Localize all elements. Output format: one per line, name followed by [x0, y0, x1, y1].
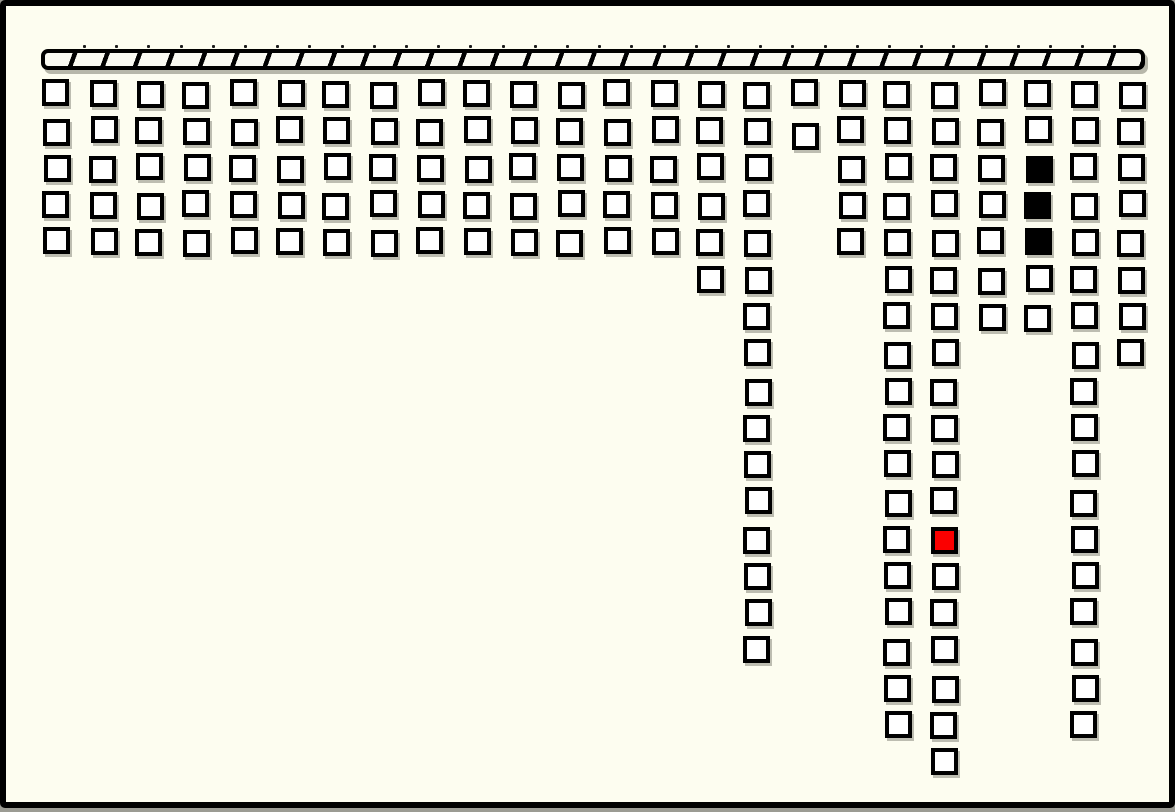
block-cell[interactable]	[696, 117, 723, 144]
block-cell[interactable]	[931, 748, 958, 775]
tick-dot	[212, 45, 215, 48]
block-cell[interactable]	[603, 191, 630, 218]
tick-dot	[373, 45, 376, 48]
block-cell[interactable]	[183, 230, 210, 257]
block-cell[interactable]	[416, 119, 443, 146]
tick-dot	[180, 45, 183, 48]
block-cell[interactable]	[930, 267, 957, 294]
block-cell[interactable]	[1117, 230, 1144, 257]
block-cell[interactable]	[885, 266, 912, 293]
block-cell[interactable]	[885, 598, 912, 625]
block-cell[interactable]	[1118, 267, 1145, 294]
block-cell[interactable]	[791, 79, 818, 106]
block-cell[interactable]	[322, 193, 349, 220]
tick-dot	[598, 45, 601, 48]
block-cell[interactable]	[744, 451, 771, 478]
block-cell[interactable]	[885, 490, 912, 517]
tick-dot	[534, 45, 537, 48]
block-cell[interactable]	[745, 267, 772, 294]
tick-dot	[920, 45, 923, 48]
block-cell[interactable]	[977, 227, 1004, 254]
block-cell[interactable]	[932, 563, 959, 590]
block-cell[interactable]	[137, 193, 164, 220]
block-cell[interactable]	[1070, 711, 1097, 738]
tick-dot	[791, 45, 794, 48]
block-cell[interactable]	[510, 193, 537, 220]
tick-dot	[759, 45, 762, 48]
block-cell[interactable]	[44, 155, 71, 182]
block-cell[interactable]	[1118, 154, 1145, 181]
block-cell[interactable]	[979, 304, 1006, 331]
tick-dot	[308, 45, 311, 48]
block-cell[interactable]	[89, 156, 116, 183]
block-cell[interactable]	[696, 229, 723, 256]
block-cell[interactable]	[1070, 490, 1097, 517]
tick-dot	[469, 45, 472, 48]
block-cell[interactable]	[698, 81, 725, 108]
block-cell[interactable]	[371, 230, 398, 257]
block-cell[interactable]	[91, 228, 118, 255]
block-cell[interactable]	[697, 153, 724, 180]
block-cell[interactable]	[651, 192, 678, 219]
block-cell[interactable]	[745, 154, 772, 181]
block-cell[interactable]	[1072, 229, 1099, 256]
block-cell[interactable]	[930, 154, 957, 181]
block-cell[interactable]	[231, 227, 258, 254]
block-cell[interactable]	[556, 118, 583, 145]
block-cell[interactable]	[1070, 153, 1097, 180]
block-cell-black[interactable]	[1026, 156, 1053, 183]
block-cell[interactable]	[1119, 82, 1146, 109]
block-cell[interactable]	[1119, 303, 1146, 330]
block-cell[interactable]	[1071, 526, 1098, 553]
block-cell[interactable]	[324, 153, 351, 180]
block-cell[interactable]	[745, 599, 772, 626]
block-cell[interactable]	[884, 562, 911, 589]
block-cell[interactable]	[978, 155, 1005, 182]
block-cell[interactable]	[883, 193, 910, 220]
block-cell[interactable]	[230, 79, 257, 106]
block-cell[interactable]	[697, 266, 724, 293]
block-cell[interactable]	[931, 415, 958, 442]
block-cell[interactable]	[884, 675, 911, 702]
block-cell[interactable]	[43, 227, 70, 254]
block-cell[interactable]	[557, 154, 584, 181]
block-cell[interactable]	[883, 81, 910, 108]
block-cell[interactable]	[698, 193, 725, 220]
block-cell[interactable]	[931, 190, 958, 217]
tick-dot	[405, 45, 408, 48]
block-cell[interactable]	[184, 154, 211, 181]
tick-dot	[1081, 45, 1084, 48]
block-cell[interactable]	[463, 80, 490, 107]
block-cell[interactable]	[931, 636, 958, 663]
block-cell[interactable]	[511, 117, 538, 144]
block-cell[interactable]	[276, 116, 303, 143]
block-cell[interactable]	[885, 711, 912, 738]
block-cell[interactable]	[837, 228, 864, 255]
block-cell[interactable]	[1071, 302, 1098, 329]
block-cell[interactable]	[932, 676, 959, 703]
tick-dot	[952, 45, 955, 48]
block-cell[interactable]	[137, 81, 164, 108]
block-cell[interactable]	[744, 563, 771, 590]
tick-dot	[985, 45, 988, 48]
block-cell[interactable]	[604, 227, 631, 254]
block-cell[interactable]	[42, 79, 69, 106]
block-cell[interactable]	[182, 82, 209, 109]
block-cell[interactable]	[652, 116, 679, 143]
tick-dot	[147, 45, 150, 48]
block-cell[interactable]	[323, 117, 350, 144]
block-cell[interactable]	[884, 342, 911, 369]
block-cell[interactable]	[1072, 342, 1099, 369]
block-cell[interactable]	[978, 268, 1005, 295]
block-cell[interactable]	[1117, 118, 1144, 145]
block-cell[interactable]	[276, 228, 303, 255]
board-frame	[0, 0, 1175, 808]
block-cell[interactable]	[323, 229, 350, 256]
tick-dot	[566, 45, 569, 48]
block-cell[interactable]	[370, 190, 397, 217]
block-cell[interactable]	[743, 82, 770, 109]
block-cell[interactable]	[932, 118, 959, 145]
block-cell[interactable]	[838, 156, 865, 183]
tick-dot	[727, 45, 730, 48]
block-cell[interactable]	[1071, 81, 1098, 108]
block-cell[interactable]	[1071, 193, 1098, 220]
block-cell[interactable]	[1117, 339, 1144, 366]
block-cell[interactable]	[277, 156, 304, 183]
block-cell[interactable]	[369, 154, 396, 181]
hatched-support-bar	[41, 49, 1145, 70]
block-cell[interactable]	[135, 117, 162, 144]
block-cell[interactable]	[884, 450, 911, 477]
block-cell[interactable]	[932, 230, 959, 257]
block-cell[interactable]	[883, 639, 910, 666]
block-cell[interactable]	[885, 153, 912, 180]
block-cell[interactable]	[977, 119, 1004, 146]
block-cell[interactable]	[91, 116, 118, 143]
block-cell[interactable]	[650, 156, 677, 183]
block-cell[interactable]	[278, 80, 305, 107]
block-cell[interactable]	[743, 527, 770, 554]
block-cell[interactable]	[465, 156, 492, 183]
block-cell[interactable]	[511, 229, 538, 256]
block-cell[interactable]	[463, 192, 490, 219]
tick-dot	[437, 45, 440, 48]
block-cell-red[interactable]	[931, 527, 958, 554]
block-cell[interactable]	[603, 79, 630, 106]
block-cell[interactable]	[136, 153, 163, 180]
block-cell-black[interactable]	[1024, 192, 1051, 219]
block-cell[interactable]	[464, 116, 491, 143]
block-cell-black[interactable]	[1025, 228, 1052, 255]
block-cell[interactable]	[745, 379, 772, 406]
tick-dot	[341, 45, 344, 48]
block-cell[interactable]	[883, 414, 910, 441]
block-cell[interactable]	[839, 80, 866, 107]
block-cell[interactable]	[558, 82, 585, 109]
block-cell[interactable]	[1024, 305, 1051, 332]
block-cell[interactable]	[509, 153, 536, 180]
tick-dot	[888, 45, 891, 48]
block-cell[interactable]	[1026, 265, 1053, 292]
block-cell[interactable]	[837, 116, 864, 143]
block-cell[interactable]	[90, 80, 117, 107]
block-cell[interactable]	[1072, 675, 1099, 702]
block-cell[interactable]	[558, 190, 585, 217]
block-cell[interactable]	[370, 82, 397, 109]
block-cell[interactable]	[278, 192, 305, 219]
block-cell[interactable]	[1119, 190, 1146, 217]
block-cell[interactable]	[743, 190, 770, 217]
block-cell[interactable]	[604, 119, 631, 146]
tick-dot	[695, 45, 698, 48]
block-cell[interactable]	[464, 228, 491, 255]
block-cell[interactable]	[652, 228, 679, 255]
block-cell[interactable]	[745, 487, 772, 514]
block-cell[interactable]	[884, 117, 911, 144]
block-cell[interactable]	[1071, 639, 1098, 666]
block-cell[interactable]	[930, 599, 957, 626]
block-cell[interactable]	[1072, 562, 1099, 589]
block-cell[interactable]	[418, 79, 445, 106]
tick-dot	[276, 45, 279, 48]
tick-dot	[115, 45, 118, 48]
block-cell[interactable]	[1025, 116, 1052, 143]
block-cell[interactable]	[42, 191, 69, 218]
tick-dot	[824, 45, 827, 48]
block-cell[interactable]	[651, 80, 678, 107]
tick-dot	[663, 45, 666, 48]
block-cell[interactable]	[43, 119, 70, 146]
tick-dot	[1017, 45, 1020, 48]
tick-dot	[630, 45, 633, 48]
block-cell[interactable]	[1024, 80, 1051, 107]
tick-dot	[83, 45, 86, 48]
block-cell[interactable]	[743, 303, 770, 330]
block-cell[interactable]	[743, 415, 770, 442]
block-cell[interactable]	[322, 81, 349, 108]
block-cell[interactable]	[930, 712, 957, 739]
block-cell[interactable]	[182, 190, 209, 217]
block-cell[interactable]	[371, 118, 398, 145]
block-cell[interactable]	[839, 192, 866, 219]
block-cell[interactable]	[1070, 598, 1097, 625]
block-cell[interactable]	[931, 303, 958, 330]
block-cell[interactable]	[792, 123, 819, 150]
block-cell[interactable]	[883, 526, 910, 553]
block-cell[interactable]	[930, 379, 957, 406]
block-cell[interactable]	[183, 118, 210, 145]
block-cell[interactable]	[1070, 378, 1097, 405]
block-cell[interactable]	[979, 191, 1006, 218]
block-cell[interactable]	[744, 339, 771, 366]
block-cell[interactable]	[1072, 450, 1099, 477]
block-cell[interactable]	[556, 230, 583, 257]
block-cell[interactable]	[135, 229, 162, 256]
block-cell[interactable]	[930, 487, 957, 514]
block-cell[interactable]	[1072, 117, 1099, 144]
block-cell[interactable]	[744, 118, 771, 145]
block-cell[interactable]	[1070, 266, 1097, 293]
tick-dot	[1049, 45, 1052, 48]
tick-dot	[856, 45, 859, 48]
block-cell[interactable]	[883, 302, 910, 329]
block-cell[interactable]	[743, 636, 770, 663]
block-cell[interactable]	[885, 378, 912, 405]
block-cell[interactable]	[744, 230, 771, 257]
tick-dot	[1113, 45, 1116, 48]
block-cell[interactable]	[418, 191, 445, 218]
block-cell[interactable]	[417, 155, 444, 182]
block-cell[interactable]	[931, 82, 958, 109]
block-cell[interactable]	[231, 119, 258, 146]
block-cell[interactable]	[979, 79, 1006, 106]
block-cell[interactable]	[90, 192, 117, 219]
block-cell[interactable]	[510, 81, 537, 108]
block-cell[interactable]	[884, 229, 911, 256]
block-cell[interactable]	[932, 451, 959, 478]
block-cell[interactable]	[1071, 414, 1098, 441]
block-cell[interactable]	[229, 155, 256, 182]
block-cell[interactable]	[932, 339, 959, 366]
tick-dot	[502, 45, 505, 48]
block-cell[interactable]	[230, 191, 257, 218]
tick-dot	[244, 45, 247, 48]
block-cell[interactable]	[416, 227, 443, 254]
block-cell[interactable]	[605, 155, 632, 182]
